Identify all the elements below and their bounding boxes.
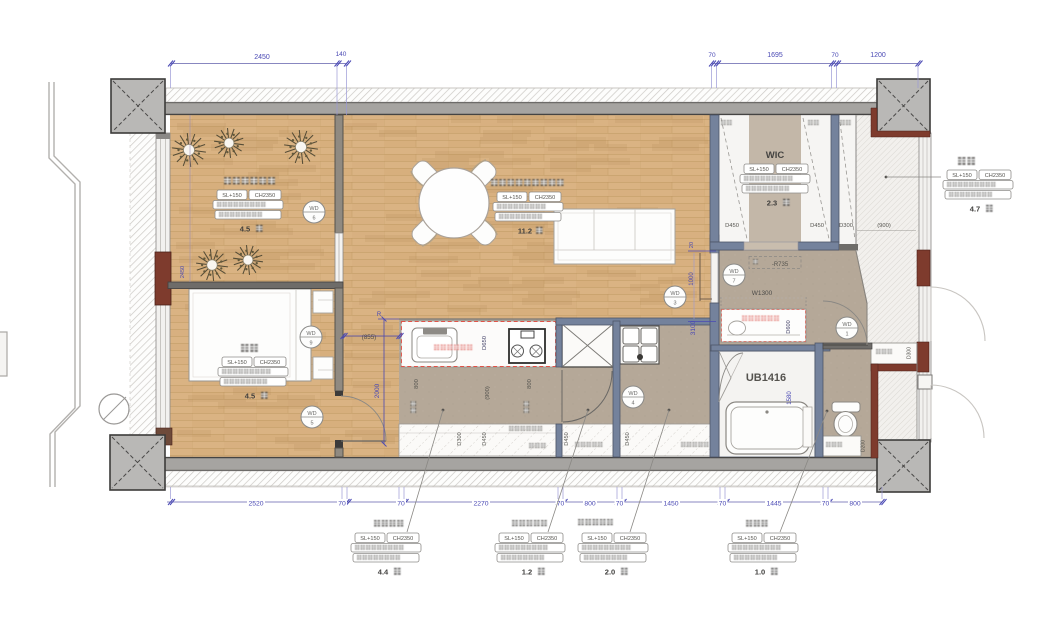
svg-text:70: 70: [397, 501, 405, 508]
svg-text:2450: 2450: [180, 266, 186, 278]
svg-text:CH2350: CH2350: [985, 173, 1006, 179]
svg-text:2.0: 2.0: [605, 568, 615, 577]
svg-text:4.4: 4.4: [378, 568, 389, 577]
svg-text:SL+150: SL+150: [737, 536, 756, 542]
svg-text:D450: D450: [482, 432, 488, 445]
svg-text:WIC: WIC: [766, 150, 785, 161]
svg-text:WD: WD: [670, 291, 679, 297]
svg-text:CH2350: CH2350: [535, 195, 556, 201]
svg-text:3: 3: [673, 301, 676, 307]
svg-text:SL+150: SL+150: [502, 195, 521, 201]
svg-text:6: 6: [312, 216, 315, 222]
svg-text:800: 800: [527, 379, 533, 389]
svg-text:7: 7: [732, 279, 735, 285]
svg-text:1: 1: [845, 332, 848, 338]
svg-text:2000: 2000: [374, 383, 381, 398]
svg-text:2.3: 2.3: [767, 199, 777, 208]
svg-text:70: 70: [831, 52, 839, 59]
svg-text:2270: 2270: [473, 501, 488, 508]
svg-text:4: 4: [631, 401, 634, 407]
svg-text:(855): (855): [362, 334, 376, 341]
svg-text:D600: D600: [786, 320, 792, 333]
svg-text:CH2350: CH2350: [537, 536, 558, 542]
svg-text:5: 5: [310, 421, 313, 427]
svg-text:SL+150: SL+150: [587, 536, 606, 542]
svg-text:1450: 1450: [663, 501, 678, 508]
svg-text:20: 20: [689, 242, 695, 248]
svg-text:1580: 1580: [787, 391, 793, 405]
svg-text:1695: 1695: [767, 52, 783, 59]
svg-text:4.5: 4.5: [240, 225, 250, 234]
svg-text:D300: D300: [907, 347, 913, 359]
svg-text:CH2350: CH2350: [393, 536, 414, 542]
svg-text:CH2350: CH2350: [770, 536, 791, 542]
svg-text:CH2350: CH2350: [255, 193, 276, 199]
svg-text:800: 800: [584, 501, 596, 508]
svg-text:SL+150: SL+150: [952, 173, 971, 179]
svg-text:1.0: 1.0: [755, 568, 765, 577]
svg-text:W1300: W1300: [752, 290, 773, 297]
svg-text:D650: D650: [482, 336, 488, 350]
svg-text:9: 9: [309, 341, 312, 347]
svg-text:WD: WD: [309, 206, 318, 212]
svg-text:CH2350: CH2350: [782, 167, 803, 173]
svg-text:WD: WD: [729, 269, 738, 275]
svg-text:4.5: 4.5: [245, 392, 255, 401]
svg-text:UB1416: UB1416: [746, 372, 786, 384]
svg-text:R: R: [377, 312, 382, 318]
svg-text:D450: D450: [810, 223, 824, 229]
svg-text:3100: 3100: [690, 320, 697, 335]
svg-text:D300: D300: [457, 432, 463, 445]
svg-text:70: 70: [338, 501, 346, 508]
svg-text:D200: D200: [861, 440, 867, 452]
svg-text:D450: D450: [564, 432, 570, 445]
svg-text:D450: D450: [725, 223, 739, 229]
svg-text:SL+150: SL+150: [360, 536, 379, 542]
svg-text:WD: WD: [307, 411, 316, 417]
svg-text:WD: WD: [842, 322, 851, 328]
svg-text:SL+150: SL+150: [222, 193, 241, 199]
svg-text:(900): (900): [485, 386, 491, 400]
svg-text:1445: 1445: [766, 501, 781, 508]
svg-text:WD: WD: [306, 331, 315, 337]
svg-text:70: 70: [616, 501, 624, 508]
svg-text:CH2350: CH2350: [260, 360, 281, 366]
svg-text:70: 70: [719, 501, 727, 508]
svg-text:11.2: 11.2: [518, 227, 532, 236]
svg-text:70: 70: [708, 52, 716, 59]
svg-text:2450: 2450: [254, 54, 270, 61]
svg-text:D450: D450: [625, 432, 631, 445]
svg-text:-R735: -R735: [772, 262, 789, 268]
svg-text:D300: D300: [839, 223, 853, 229]
svg-text:SL+150: SL+150: [227, 360, 246, 366]
svg-text:2520: 2520: [248, 501, 263, 508]
svg-text:4.7: 4.7: [970, 205, 980, 214]
svg-text:800: 800: [414, 379, 420, 389]
svg-text:70: 70: [822, 501, 830, 508]
svg-text:800: 800: [849, 501, 861, 508]
svg-text:(900): (900): [877, 223, 891, 229]
svg-text:1.2: 1.2: [522, 568, 532, 577]
svg-text:SL+150: SL+150: [749, 167, 768, 173]
svg-text:CH2350: CH2350: [620, 536, 641, 542]
svg-text:140: 140: [336, 51, 347, 58]
svg-text:WD: WD: [628, 391, 637, 397]
svg-text:1200: 1200: [870, 52, 886, 59]
svg-text:SL+150: SL+150: [504, 536, 523, 542]
